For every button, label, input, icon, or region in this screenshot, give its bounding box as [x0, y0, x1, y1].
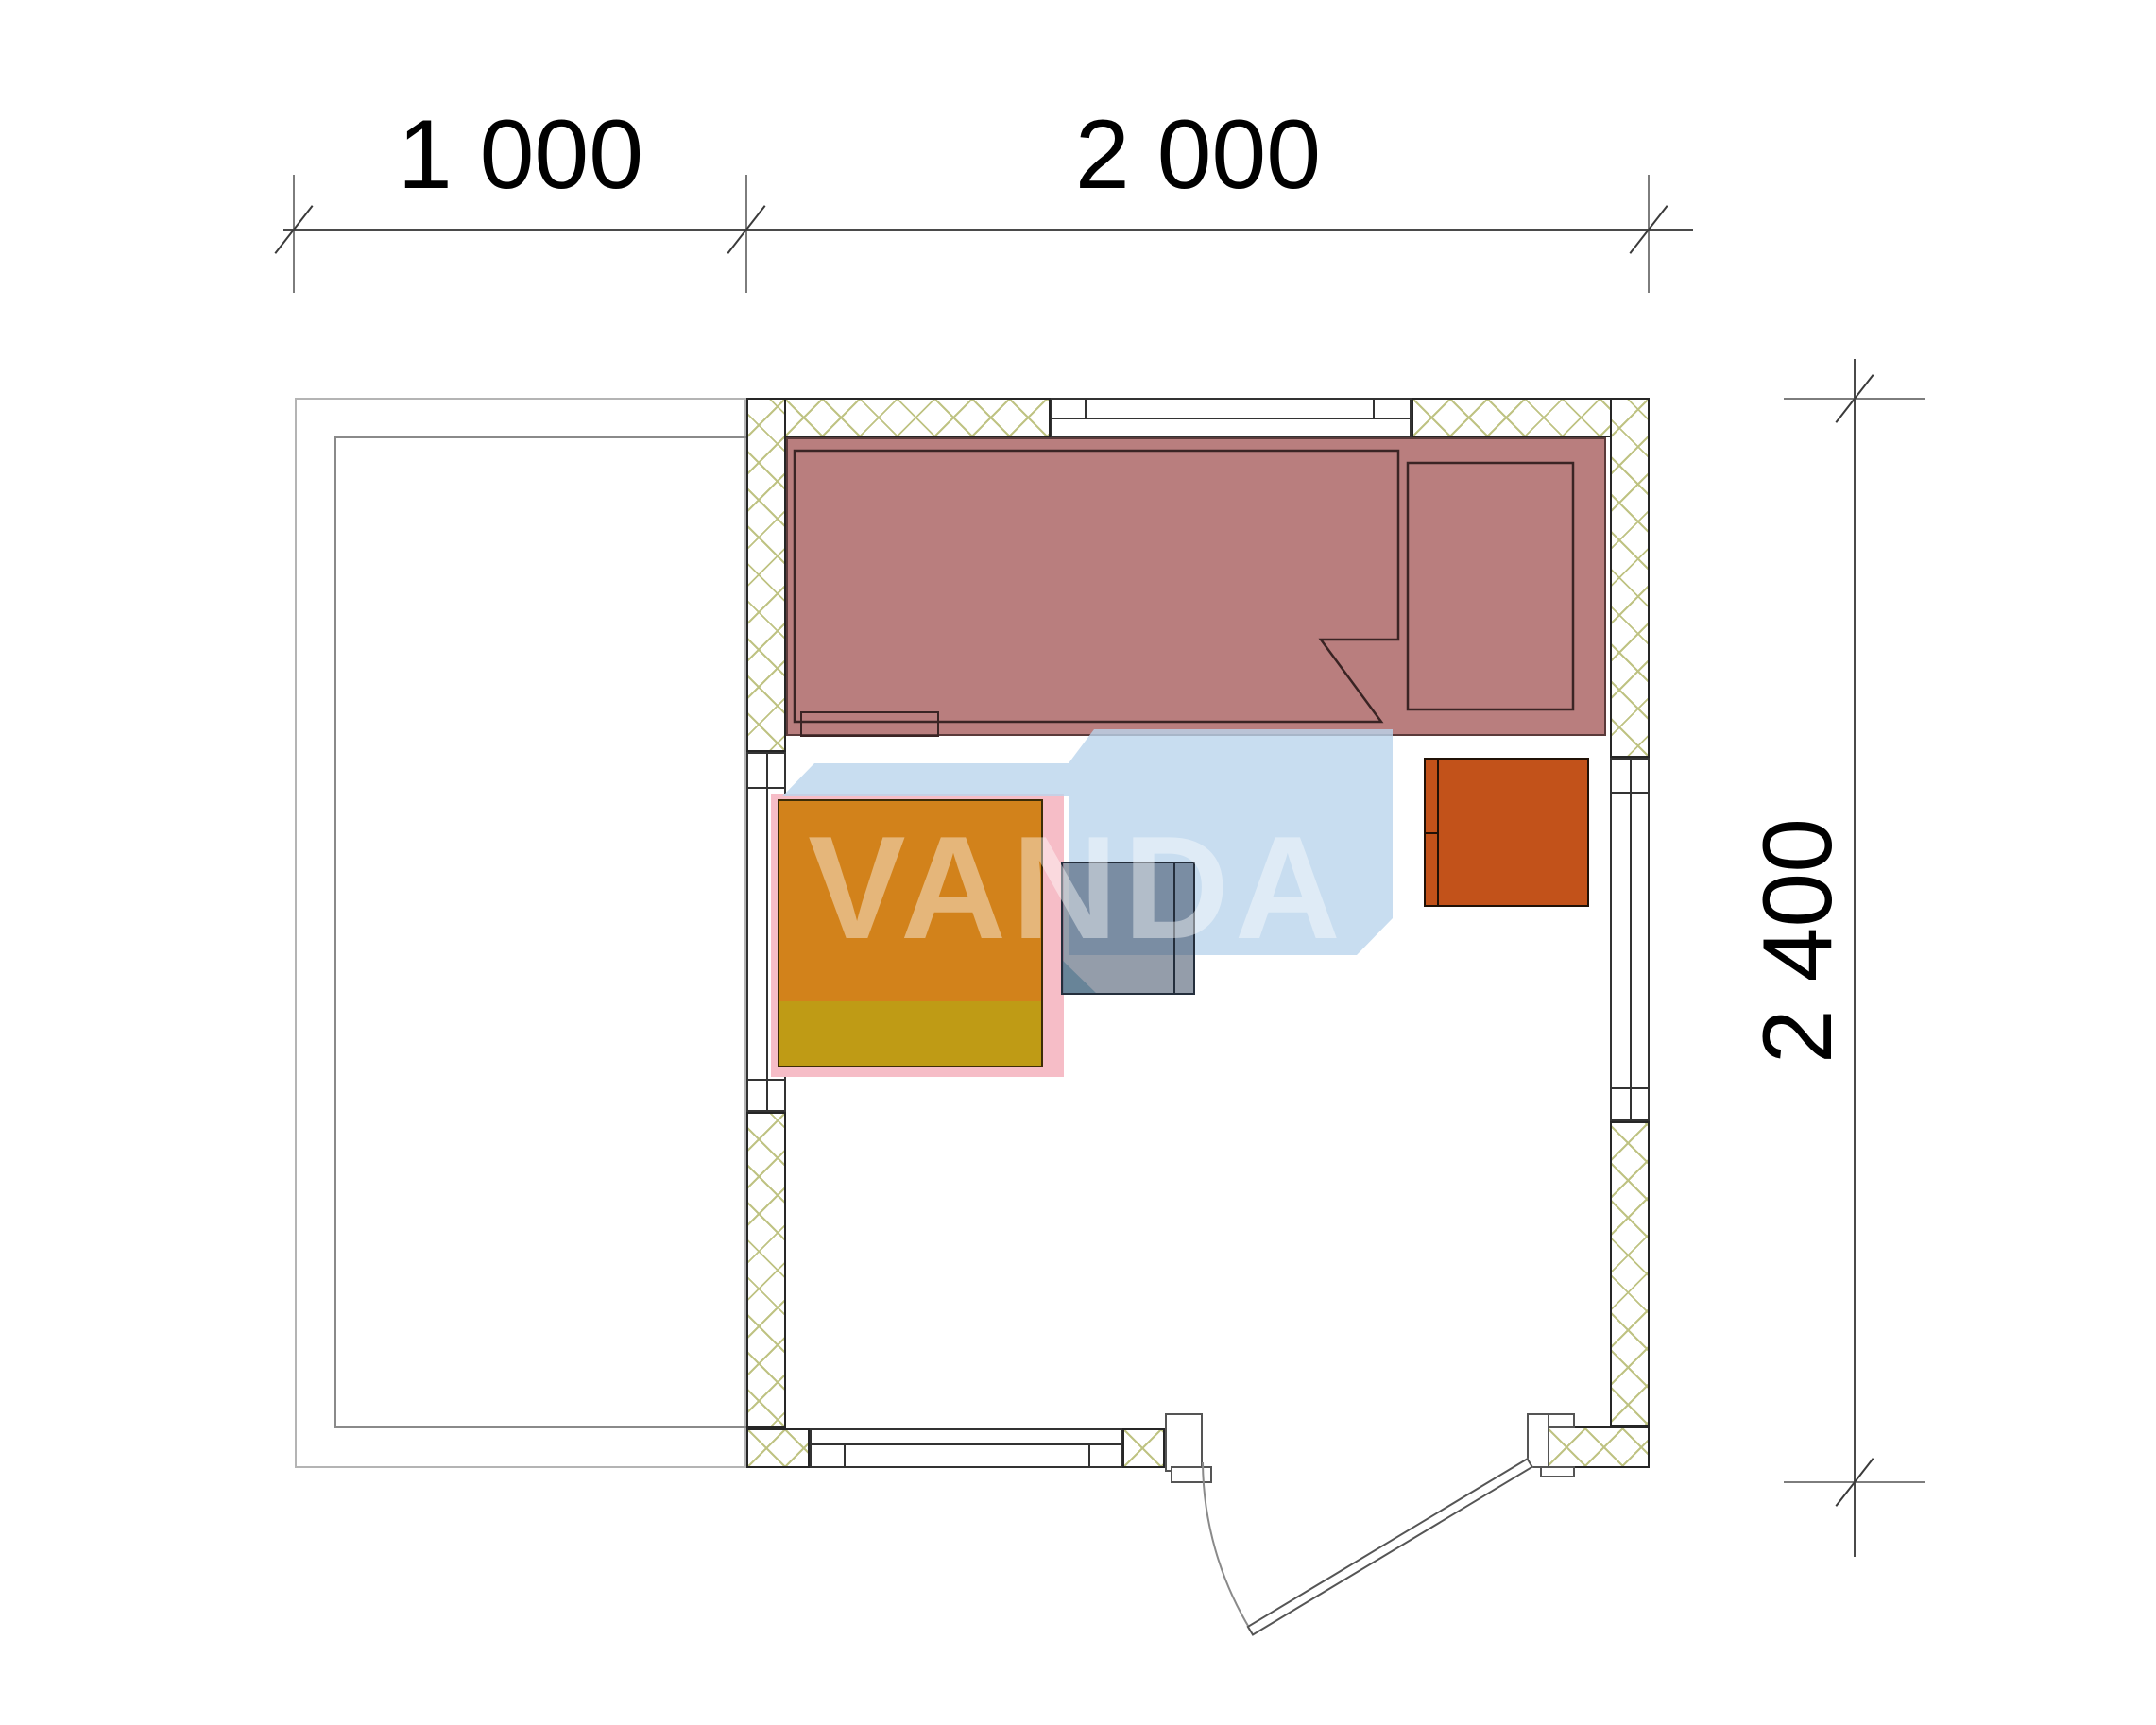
dim-ext-top-1 — [293, 175, 295, 293]
dim-ext-top-2 — [745, 175, 747, 293]
dim-label-1000: 1 000 — [369, 106, 672, 204]
watermark-text: VANDA — [751, 814, 1403, 961]
dim-label-2000: 2 000 — [1047, 106, 1349, 204]
dim-ext-top-3 — [1648, 175, 1650, 293]
floor-plan-canvas: VANDA 1 000 2 000 2 400 — [0, 0, 2156, 1725]
dimension-line-top — [283, 229, 1693, 231]
dim-label-2400: 2 400 — [1749, 790, 1847, 1092]
dimension-line-right — [1854, 359, 1856, 1557]
